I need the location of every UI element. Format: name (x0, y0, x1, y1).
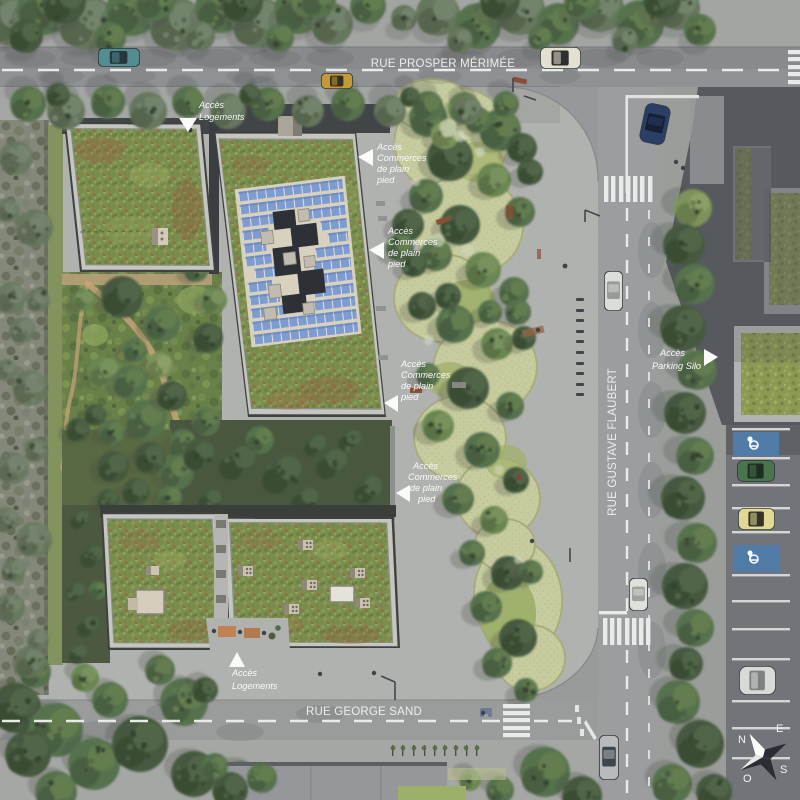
svg-text:E: E (776, 723, 783, 735)
svg-text:N: N (738, 734, 746, 746)
svg-text:S: S (780, 764, 787, 776)
svg-text:O: O (743, 773, 752, 785)
